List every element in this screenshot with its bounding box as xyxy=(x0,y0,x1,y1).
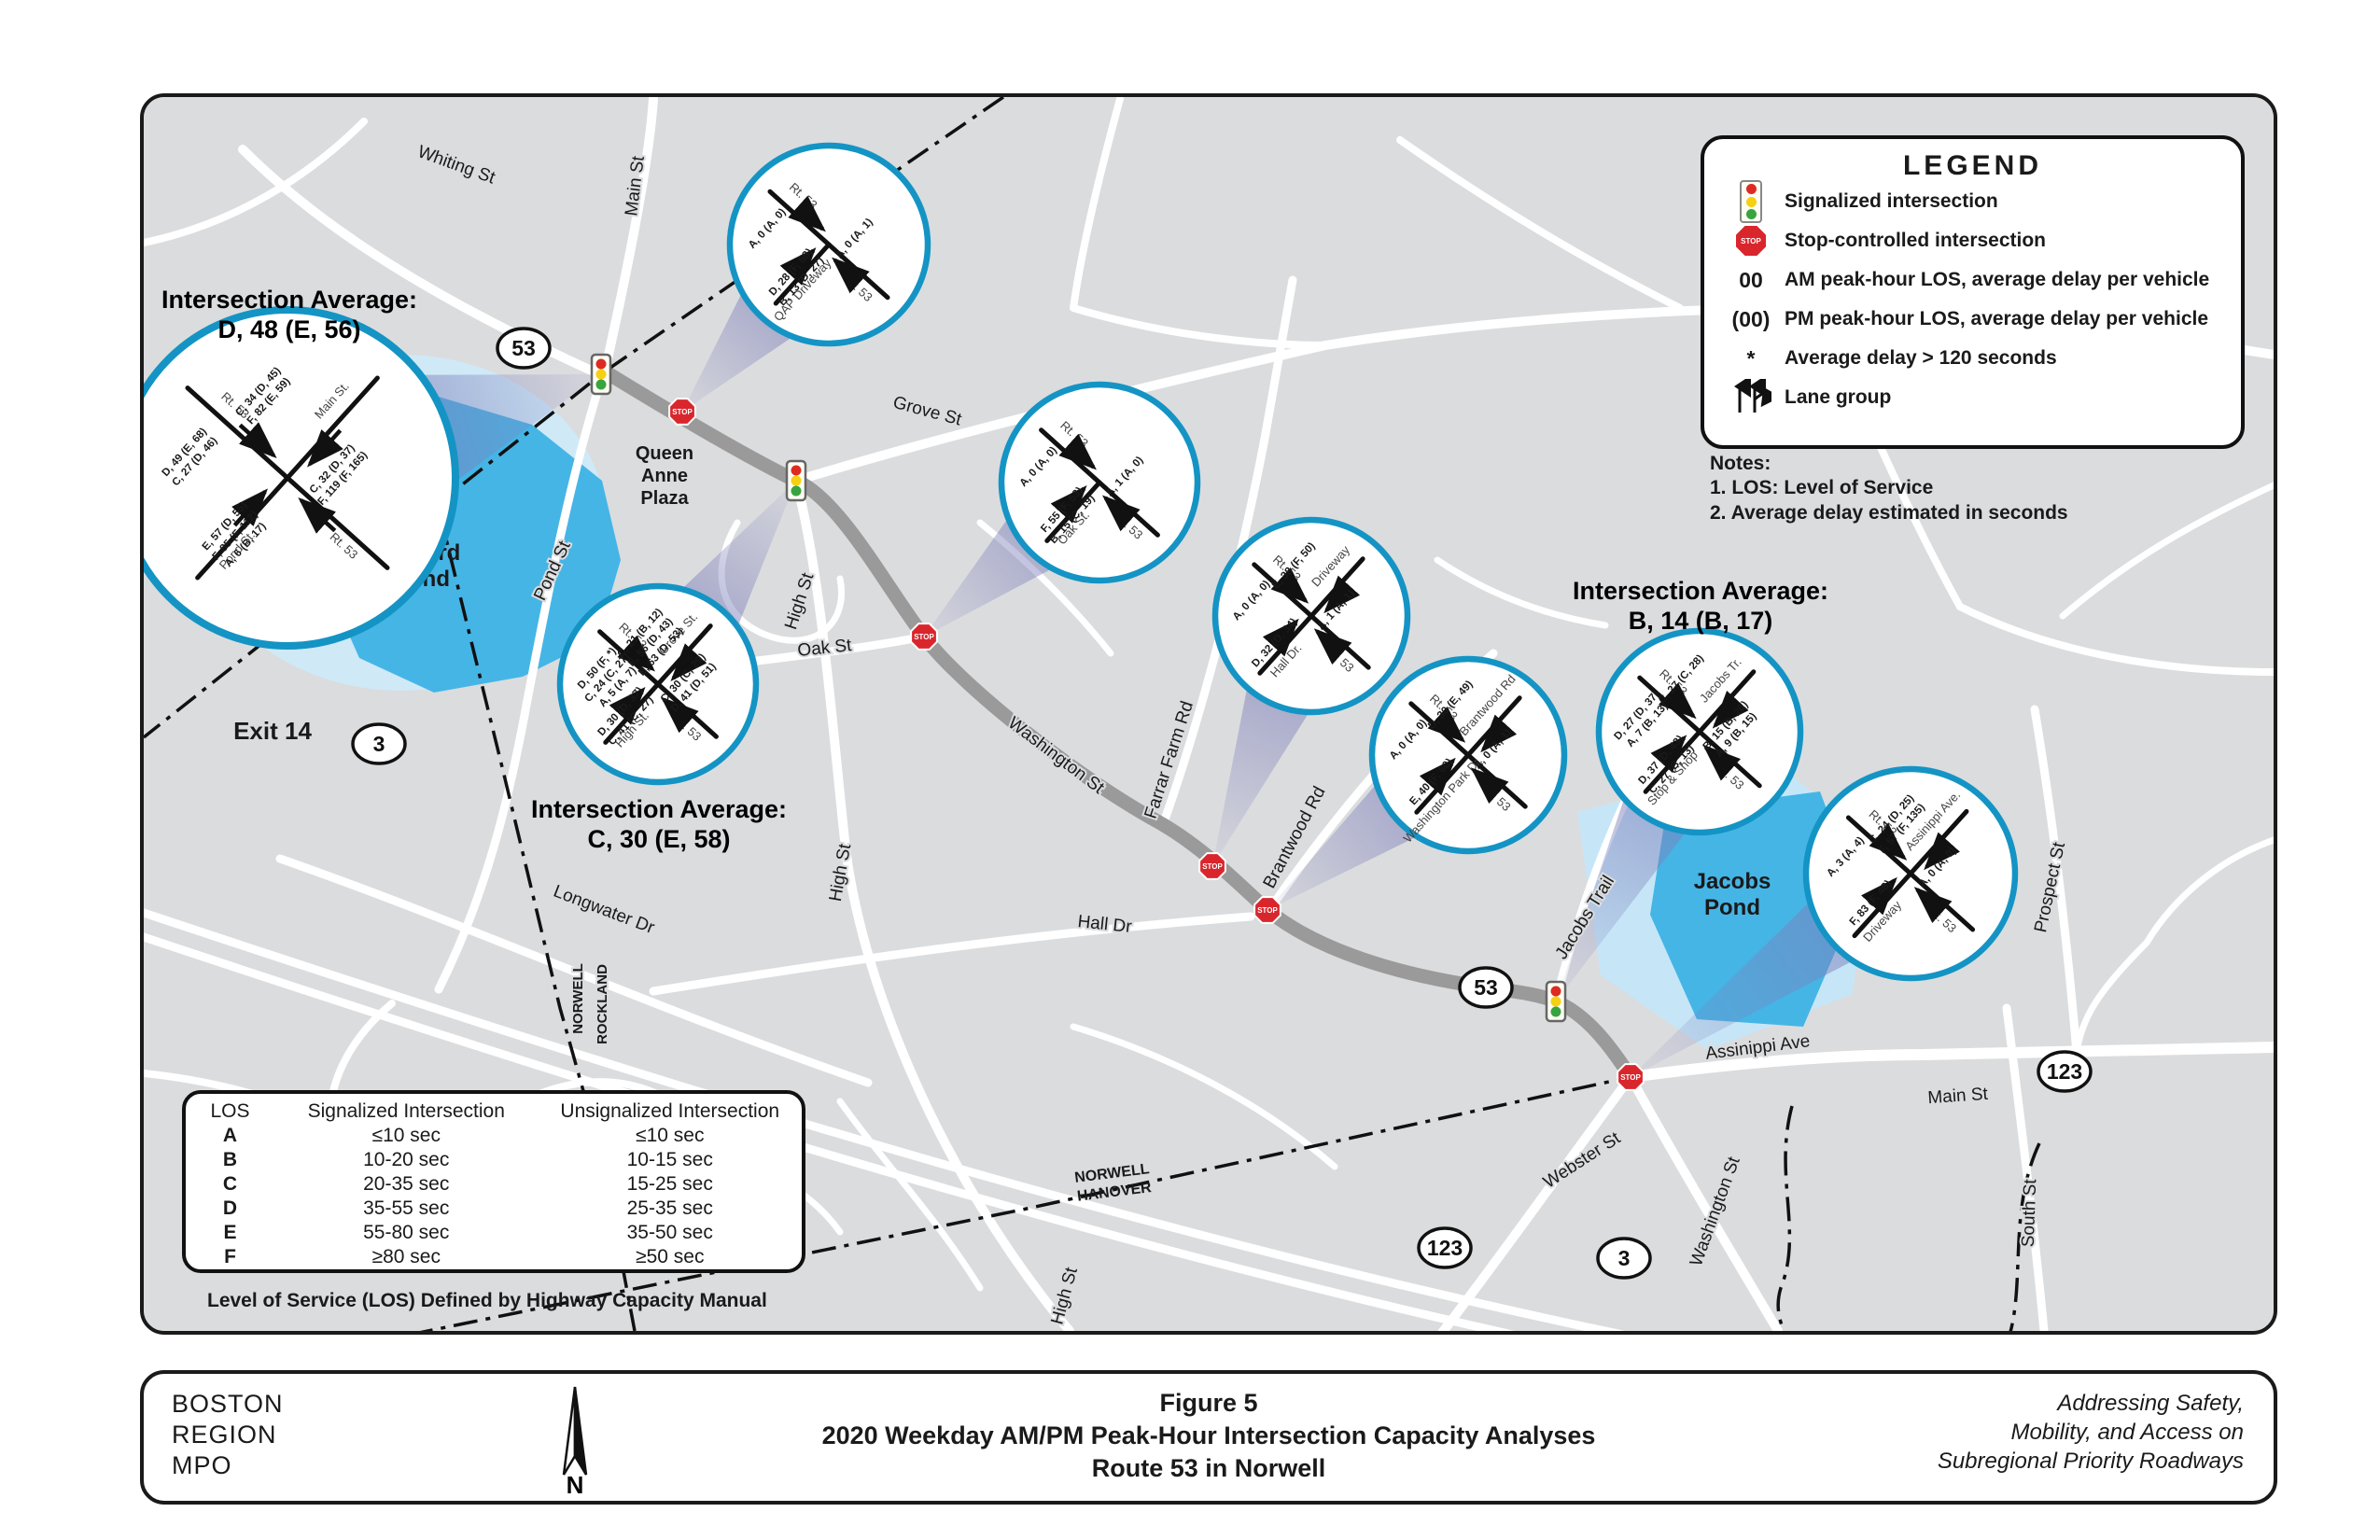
legend-title: LEGEND xyxy=(1704,150,2241,182)
los-grade: E xyxy=(186,1221,274,1245)
route-number: 123 xyxy=(1427,1236,1463,1260)
traffic-signal-icon xyxy=(592,355,610,394)
route-shield: 123 xyxy=(2038,1052,2091,1091)
los-signalized-value: 10-20 sec xyxy=(274,1148,539,1172)
intersection-average-value: B, 14 (B, 17) xyxy=(1629,607,1773,635)
place-label-line: Pond xyxy=(1704,895,1760,920)
legend-label: AM peak-hour LOS, average delay per vehi… xyxy=(1785,269,2209,291)
symbol-3: (00) xyxy=(1717,307,1785,332)
intersection-callout: Rt. 53Rt. 53Jacobs Tr.Stop & ShopC, 27 (… xyxy=(1599,631,1800,833)
intersection-average-title: Intersection Average: xyxy=(161,286,417,314)
route-number: 53 xyxy=(1474,975,1498,1000)
program-tagline: Addressing Safety, Mobility, and Access … xyxy=(1938,1389,2244,1477)
route-shield: 53 xyxy=(497,329,550,368)
intersection-callout: Rt. 53Rt. 53Grove St.High St.C, 21 (B, 1… xyxy=(560,586,756,782)
route-number: 3 xyxy=(1618,1246,1631,1270)
stop-sign-icon: STOP xyxy=(1717,226,1785,256)
place-label-line: Jacobs xyxy=(1694,869,1771,894)
legend-item: *Average delay > 120 seconds xyxy=(1717,339,2241,378)
route-shield: 3 xyxy=(353,724,405,763)
intersection-average-value: C, 30 (E, 58) xyxy=(587,825,730,853)
street-label: South St xyxy=(2019,1178,2041,1247)
stop-sign-icon: STOP xyxy=(1617,1064,1644,1090)
route-shield: 123 xyxy=(1419,1228,1471,1267)
legend-item: Lane group xyxy=(1717,378,2241,417)
los-unsignalized-value: 35-50 sec xyxy=(539,1221,803,1245)
stop-sign-icon: STOP xyxy=(1254,897,1281,923)
los-signalized-value: ≤10 sec xyxy=(274,1124,539,1148)
notes-heading: Notes: xyxy=(1710,452,2068,476)
los-header: LOS xyxy=(186,1099,274,1124)
intersection-callout: Rt. 53Rt. 53Oak St.A, 0 (A, 0)A, 1 (A, 0… xyxy=(1001,385,1197,581)
route-shield: 3 xyxy=(1598,1239,1650,1278)
intersection-average-title: Intersection Average: xyxy=(531,795,787,823)
legend-label: Signalized intersection xyxy=(1785,190,1998,213)
los-signalized-value: 20-35 sec xyxy=(274,1172,539,1197)
los-table: LOSSignalized IntersectionUnsignalized I… xyxy=(182,1090,805,1273)
map-notes: Notes: 1. LOS: Level of Service 2. Avera… xyxy=(1710,452,2068,525)
route-shield: 53 xyxy=(1460,968,1512,1007)
intersection-callout: Rt. 53Rt. 53Main St.Pond St.C, 34 (D, 45… xyxy=(144,310,455,646)
los-unsignalized-value: 25-35 sec xyxy=(539,1197,803,1221)
symbol-2: 00 xyxy=(1717,268,1785,293)
stop-sign-icon: STOP xyxy=(911,623,937,650)
los-signalized-value: 55-80 sec xyxy=(274,1221,539,1245)
svg-text:STOP: STOP xyxy=(914,633,934,641)
route-number: 123 xyxy=(2047,1059,2082,1084)
street-label: NORWELL xyxy=(570,963,586,1034)
legend-item: (00)PM peak-hour LOS, average delay per … xyxy=(1717,300,2241,339)
note-line: 2. Average delay estimated in seconds xyxy=(1710,501,2068,525)
figure-page: Main StWhiting StGrove StPond StHigh StO… xyxy=(0,0,2380,1540)
svg-text:STOP: STOP xyxy=(1202,862,1223,871)
los-unsignalized-value: ≥50 sec xyxy=(539,1245,803,1269)
legend-label: Lane group xyxy=(1785,386,1891,409)
los-footnote: Level of Service (LOS) Defined by Highwa… xyxy=(207,1290,767,1312)
traffic-signal-icon xyxy=(787,461,805,500)
stop-sign-icon: STOP xyxy=(1199,853,1225,879)
place-label-line: Queen xyxy=(636,443,693,464)
legend-label: Stop-controlled intersection xyxy=(1785,230,2046,252)
los-grid: LOSSignalized IntersectionUnsignalized I… xyxy=(186,1099,802,1269)
place-label: JacobsPond xyxy=(1694,869,1771,920)
los-grade: D xyxy=(186,1197,274,1221)
los-signalized-value: ≥80 sec xyxy=(274,1245,539,1269)
intersection-callout: Rt. 53Rt. 53QAP DrivewayA, 0 (A, 0)A, 0 … xyxy=(730,146,928,343)
los-signalized-value: 35-55 sec xyxy=(274,1197,539,1221)
legend-box: LEGEND Signalized intersectionSTOPStop-c… xyxy=(1701,135,2245,449)
los-grade: B xyxy=(186,1148,274,1172)
route-number: 53 xyxy=(511,336,536,360)
los-unsignalized-value: 15-25 sec xyxy=(539,1172,803,1197)
intersection-average-value: D, 48 (E, 56) xyxy=(217,315,360,343)
legend-item: STOPStop-controlled intersection xyxy=(1717,221,2241,260)
svg-text:STOP: STOP xyxy=(1257,906,1278,915)
legend-label: PM peak-hour LOS, average delay per vehi… xyxy=(1785,308,2208,330)
svg-text:STOP: STOP xyxy=(672,408,693,416)
map-panel: Main StWhiting StGrove StPond StHigh StO… xyxy=(140,93,2277,1335)
place-label-line: Plaza xyxy=(640,488,689,509)
los-header: Unsignalized Intersection xyxy=(539,1099,803,1124)
traffic-signal-icon xyxy=(1547,982,1565,1021)
svg-text:STOP: STOP xyxy=(1620,1073,1641,1082)
legend-rows: Signalized intersectionSTOPStop-controll… xyxy=(1704,182,2241,417)
legend-item: Signalized intersection xyxy=(1717,182,2241,221)
los-unsignalized-value: 10-15 sec xyxy=(539,1148,803,1172)
legend-item: 00AM peak-hour LOS, average delay per ve… xyxy=(1717,260,2241,300)
legend-label: Average delay > 120 seconds xyxy=(1785,347,2057,370)
traffic-signal-icon xyxy=(1717,180,1785,223)
los-header: Signalized Intersection xyxy=(274,1099,539,1124)
street-label: Exit 14 xyxy=(233,717,312,745)
los-unsignalized-value: ≤10 sec xyxy=(539,1124,803,1148)
intersection-callout: Rt. 53Rt. 53Assinippi Ave.DrivewayC, 24 … xyxy=(1806,769,2015,978)
note-line: 1. LOS: Level of Service xyxy=(1710,476,2068,500)
route-number: 3 xyxy=(373,732,385,756)
street-label: ROCKLAND xyxy=(595,964,610,1044)
intersection-average-title: Intersection Average: xyxy=(1573,577,1828,605)
stop-sign-icon: STOP xyxy=(669,399,695,425)
lane-group-icon xyxy=(1717,379,1785,416)
title-block: BOSTON REGION MPO N Figure 5 2020 Weekda… xyxy=(140,1370,2277,1505)
place-label-line: Anne xyxy=(641,466,688,486)
place-label: QueenAnnePlaza xyxy=(636,443,693,509)
callout-circle xyxy=(144,310,455,646)
los-grade: C xyxy=(186,1172,274,1197)
los-grade: A xyxy=(186,1124,274,1148)
intersection-callout: Rt. 53Rt. 53DrivewayHall Dr.E, 38 (F, 50… xyxy=(1215,520,1407,712)
los-grade: F xyxy=(186,1245,274,1269)
symbol-4: * xyxy=(1717,346,1785,371)
intersection-callout: Rt. 53Rt. 53Brantwood RdWashington Park … xyxy=(1372,659,1564,851)
